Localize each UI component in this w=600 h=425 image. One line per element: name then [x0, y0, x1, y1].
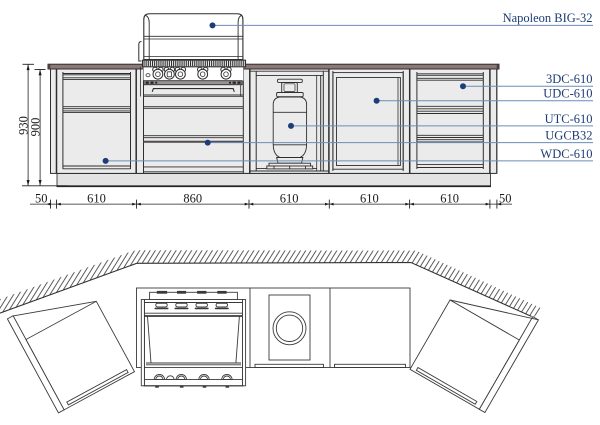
svg-text:50: 50 [499, 191, 512, 205]
svg-text:610: 610 [440, 191, 459, 205]
svg-text:Napoleon BIG-32: Napoleon BIG-32 [503, 11, 593, 25]
svg-text:50: 50 [35, 191, 48, 205]
svg-text:610: 610 [87, 191, 106, 205]
svg-text:UGCB32: UGCB32 [545, 129, 592, 143]
svg-text:UDC-610: UDC-610 [543, 87, 592, 101]
svg-text:3DC-610: 3DC-610 [546, 72, 593, 86]
svg-text:610: 610 [360, 191, 379, 205]
svg-text:610: 610 [280, 191, 299, 205]
svg-text:900: 900 [29, 118, 43, 137]
svg-text:UTC-610: UTC-610 [545, 112, 593, 126]
svg-text:WDC-610: WDC-610 [540, 147, 592, 161]
svg-text:860: 860 [183, 191, 202, 205]
